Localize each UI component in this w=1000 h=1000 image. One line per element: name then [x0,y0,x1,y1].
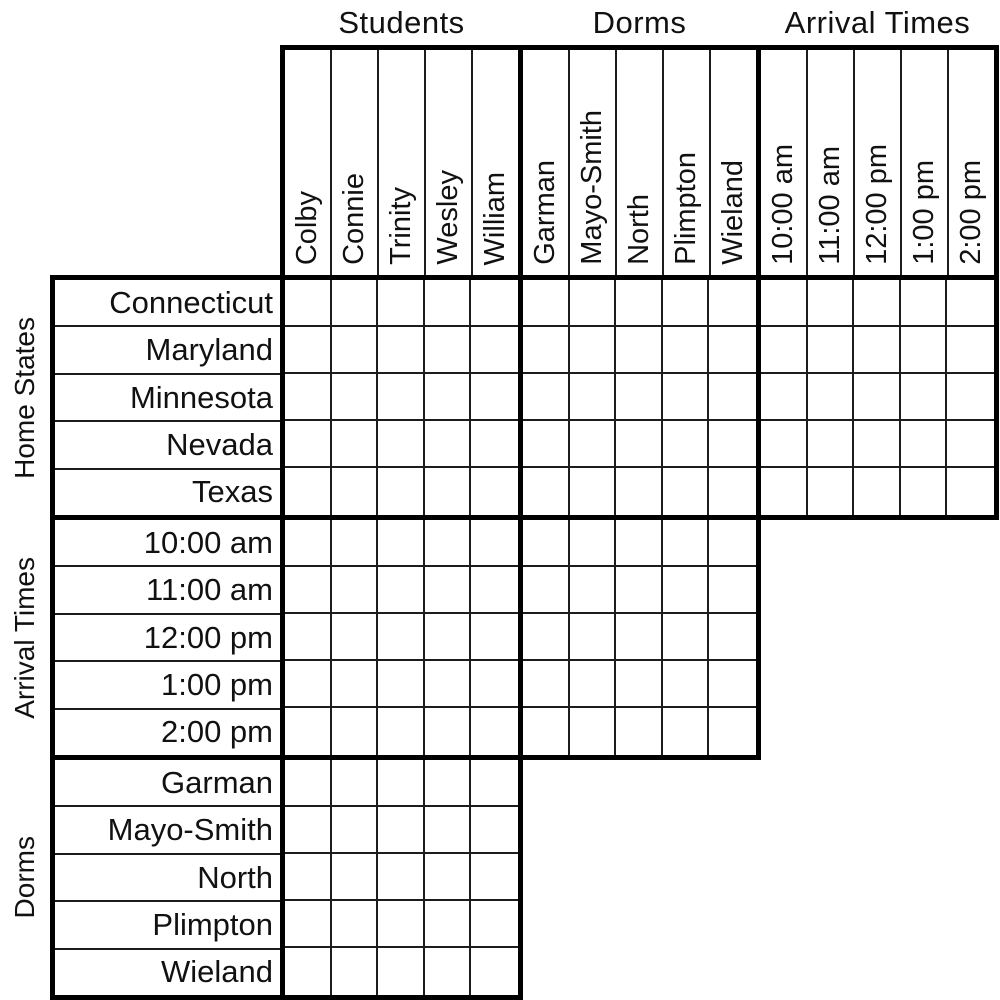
grid-cell[interactable] [570,708,617,755]
grid-cell[interactable] [808,280,855,327]
column-headers: Colby Connie Trinity Wesley William Garm… [280,45,999,280]
grid-cell[interactable] [332,661,379,708]
grid-cell[interactable] [471,567,518,614]
grid-cell[interactable] [761,374,808,421]
column-header-cell: Trinity [379,50,426,275]
grid-cell[interactable] [570,520,617,567]
grid-cell[interactable] [808,468,855,515]
grid-cell[interactable] [285,661,332,708]
grid-cell[interactable] [471,760,518,807]
row-group-label-dorms: Dorms [0,755,50,1000]
grid-cell[interactable] [332,948,379,995]
grid-cell[interactable] [663,374,710,421]
grid-cell[interactable] [663,421,710,468]
grid-cell[interactable] [285,468,332,515]
grid-cell[interactable] [285,567,332,614]
grid-cell[interactable] [332,760,379,807]
grid-cell[interactable] [285,614,332,661]
row-label: 12:00 pm [55,615,280,662]
grid-cell[interactable] [285,854,332,901]
column-header-block-arrival-times: 10:00 am 11:00 am 12:00 pm 1:00 pm 2:00 … [761,50,994,275]
column-label: Wesley [434,170,463,265]
grid-cell[interactable] [709,567,756,614]
column-header-cell: Connie [332,50,379,275]
grid-cell[interactable] [378,468,425,515]
grid-cell[interactable] [471,708,518,755]
column-group-caption-students: Students [285,4,518,42]
grid-cell[interactable] [471,280,518,327]
column-header-cell: William [473,50,518,275]
grid-cell[interactable] [378,760,425,807]
grid-cell[interactable] [425,421,472,468]
column-group-caption-dorms: Dorms [523,4,756,42]
column-label: 10:00 am [769,144,798,265]
row-label: Plimpton [55,902,280,949]
grid-cell[interactable] [616,567,663,614]
grid-cell[interactable] [378,661,425,708]
grid-cell[interactable] [570,327,617,374]
grid-cell[interactable] [663,280,710,327]
grid-cell[interactable] [709,421,756,468]
grid-cell[interactable] [663,661,710,708]
grid-cell[interactable] [471,901,518,948]
grid-cell[interactable] [378,901,425,948]
grid-cell[interactable] [616,374,663,421]
grid-cell[interactable] [471,374,518,421]
row-label: Mayo-Smith [55,807,280,854]
grid-cell[interactable] [471,421,518,468]
grid-cell[interactable] [901,421,948,468]
grid-cell[interactable] [285,760,332,807]
grid-cell[interactable] [523,708,570,755]
column-header-cell: 1:00 pm [902,50,949,275]
row-label: North [55,855,280,902]
grid-cell[interactable] [523,614,570,661]
grid-cell[interactable] [570,421,617,468]
grid-cell[interactable] [378,520,425,567]
grid-block-arrival-times-x-students [285,520,518,755]
row-labels-home-states: Connecticut Maryland Minnesota Nevada Te… [50,275,285,520]
row-label: 11:00 am [55,567,280,614]
row-label: Minnesota [55,375,280,422]
column-label: 11:00 am [816,146,845,265]
grid-cell[interactable] [285,280,332,327]
grid-cell[interactable] [523,661,570,708]
grid-cell[interactable] [523,520,570,567]
column-header-block-dorms: Garman Mayo-Smith North Plimpton Wieland [523,50,756,275]
grid-cell[interactable] [285,948,332,995]
grid-cell[interactable] [761,421,808,468]
grid-cell[interactable] [761,327,808,374]
grid-cell[interactable] [378,614,425,661]
grid-cell[interactable] [616,280,663,327]
grid-cell[interactable] [616,661,663,708]
grid-cell[interactable] [616,421,663,468]
column-header-cell: 2:00 pm [949,50,994,275]
grid-cell[interactable] [663,327,710,374]
grid-cell[interactable] [285,327,332,374]
column-label: Connie [340,173,369,265]
row-group-label-arrival-times: Arrival Times [0,515,50,760]
grid-cell[interactable] [332,280,379,327]
grid-cell[interactable] [901,327,948,374]
grid-cell[interactable] [663,567,710,614]
grid-cell[interactable] [808,374,855,421]
column-header-cell: 10:00 am [761,50,808,275]
column-header-cell: North [617,50,664,275]
column-header-cell: Colby [285,50,332,275]
grid-cell[interactable] [332,901,379,948]
grid-cell[interactable] [709,374,756,421]
grid-cell[interactable] [332,421,379,468]
grid-cell[interactable] [523,421,570,468]
column-label: William [481,172,510,265]
logic-grid-puzzle: Students Dorms Arrival Times Colby Conni… [0,0,1000,1000]
grid-cell[interactable] [471,327,518,374]
grid-cell[interactable] [901,374,948,421]
row-label: Texas [55,470,280,515]
grid-cell[interactable] [425,948,472,995]
column-header-cell: Wesley [426,50,473,275]
grid-cell[interactable] [570,280,617,327]
grid-cell[interactable] [378,374,425,421]
grid-block-home-states-x-students [285,280,518,515]
grid-cell[interactable] [425,614,472,661]
grid-cell[interactable] [523,280,570,327]
grid-cell[interactable] [663,520,710,567]
grid-cell[interactable] [854,374,901,421]
column-group-caption-arrival-times: Arrival Times [761,4,994,42]
grid-cell[interactable] [425,661,472,708]
column-label: Colby [293,191,322,265]
row-label: 1:00 pm [55,662,280,709]
grid-cell[interactable] [332,468,379,515]
grid-block-dorms-x-students [285,760,518,995]
grid-cell[interactable] [425,374,472,421]
column-header-cell: Mayo-Smith [570,50,617,275]
grid-cell[interactable] [854,327,901,374]
row-label: Connecticut [55,280,280,327]
grid-cell[interactable] [854,468,901,515]
column-label: Garman [531,160,560,265]
column-header-cell: 12:00 pm [855,50,902,275]
grid-cell[interactable] [709,661,756,708]
grid-cell[interactable] [761,468,808,515]
grid-cell[interactable] [471,468,518,515]
grid-cell[interactable] [570,661,617,708]
grid-cell[interactable] [425,901,472,948]
column-header-cell: 11:00 am [808,50,855,275]
grid-cell[interactable] [901,468,948,515]
grid-cell[interactable] [471,807,518,854]
grid-cell[interactable] [378,807,425,854]
grid-cell[interactable] [285,807,332,854]
column-label: 2:00 pm [957,160,986,265]
grid-cell[interactable] [709,614,756,661]
grid-cell[interactable] [471,948,518,995]
grid-cell[interactable] [471,520,518,567]
grid-cell[interactable] [901,280,948,327]
grid-cell[interactable] [425,708,472,755]
grid-cell[interactable] [570,468,617,515]
grid-cell[interactable] [570,614,617,661]
grid-cell[interactable] [523,374,570,421]
grid-cell[interactable] [761,280,808,327]
grid-cell[interactable] [285,708,332,755]
grid-cell[interactable] [616,327,663,374]
grid-cell[interactable] [523,327,570,374]
row-label: Nevada [55,422,280,469]
grid-cell[interactable] [332,567,379,614]
column-header-cell: Plimpton [664,50,711,275]
grid-cell[interactable] [709,520,756,567]
row-label: 2:00 pm [55,710,280,755]
grid-cell[interactable] [378,948,425,995]
row-group-label-home-states: Home States [0,275,50,520]
grid-cell[interactable] [285,520,332,567]
column-label: Trinity [387,187,416,265]
grid-cell[interactable] [332,374,379,421]
row-label: Garman [55,760,280,807]
grid-block-arrival-times-x-dorms [523,520,756,755]
row-labels-arrival-times: 10:00 am 11:00 am 12:00 pm 1:00 pm 2:00 … [50,515,285,760]
grid-cell[interactable] [332,327,379,374]
row-label: Wieland [55,950,280,995]
column-label: Wieland [719,160,748,265]
grid-cell[interactable] [332,807,379,854]
grid-cell[interactable] [471,614,518,661]
grid-cell[interactable] [947,468,994,515]
grid-band-dorms [280,755,523,1000]
grid-block-home-states-x-dorms [523,280,756,515]
grid-cell[interactable] [378,854,425,901]
grid-cell[interactable] [378,567,425,614]
grid-cell[interactable] [947,421,994,468]
grid-cell[interactable] [425,520,472,567]
grid-cell[interactable] [663,468,710,515]
grid-cell[interactable] [332,854,379,901]
grid-cell[interactable] [709,280,756,327]
column-label: Mayo-Smith [578,110,607,265]
grid-cell[interactable] [425,567,472,614]
grid-cell[interactable] [285,901,332,948]
grid-cell[interactable] [570,567,617,614]
grid-cell[interactable] [471,854,518,901]
grid-band-home-states [280,275,999,520]
grid-cell[interactable] [523,468,570,515]
grid-cell[interactable] [947,280,994,327]
column-label: 1:00 pm [910,160,939,265]
grid-block-home-states-x-arrival-times [761,280,994,515]
grid-cell[interactable] [854,421,901,468]
grid-cell[interactable] [570,374,617,421]
grid-cell[interactable] [378,708,425,755]
grid-cell[interactable] [663,708,710,755]
grid-cell[interactable] [425,760,472,807]
grid-cell[interactable] [616,614,663,661]
grid-cell[interactable] [709,327,756,374]
column-header-cell: Garman [523,50,570,275]
grid-cell[interactable] [947,374,994,421]
column-label: North [625,194,654,265]
grid-cell[interactable] [709,708,756,755]
grid-cell[interactable] [425,280,472,327]
grid-cell[interactable] [285,421,332,468]
grid-cell[interactable] [425,854,472,901]
grid-cell[interactable] [616,468,663,515]
grid-cell[interactable] [663,614,710,661]
grid-cell[interactable] [808,421,855,468]
column-header-block-students: Colby Connie Trinity Wesley William [285,50,518,275]
grid-cell[interactable] [332,708,379,755]
grid-cell[interactable] [332,614,379,661]
row-labels-dorms: Garman Mayo-Smith North Plimpton Wieland [50,755,285,1000]
grid-cell[interactable] [285,374,332,421]
grid-cell[interactable] [523,567,570,614]
column-header-cell: Wieland [711,50,756,275]
grid-cell[interactable] [332,520,379,567]
grid-cell[interactable] [378,421,425,468]
column-label: Plimpton [672,152,701,265]
grid-cell[interactable] [378,280,425,327]
grid-band-arrival-times [280,515,761,760]
grid-cell[interactable] [854,280,901,327]
grid-cell[interactable] [471,661,518,708]
row-label: Maryland [55,327,280,374]
grid-cell[interactable] [709,468,756,515]
row-label: 10:00 am [55,520,280,567]
grid-cell[interactable] [425,807,472,854]
grid-cell[interactable] [947,327,994,374]
grid-cell[interactable] [616,520,663,567]
grid-cell[interactable] [425,327,472,374]
grid-cell[interactable] [425,468,472,515]
grid-cell[interactable] [808,327,855,374]
grid-cell[interactable] [616,708,663,755]
grid-cell[interactable] [378,327,425,374]
column-label: 12:00 pm [863,144,892,265]
